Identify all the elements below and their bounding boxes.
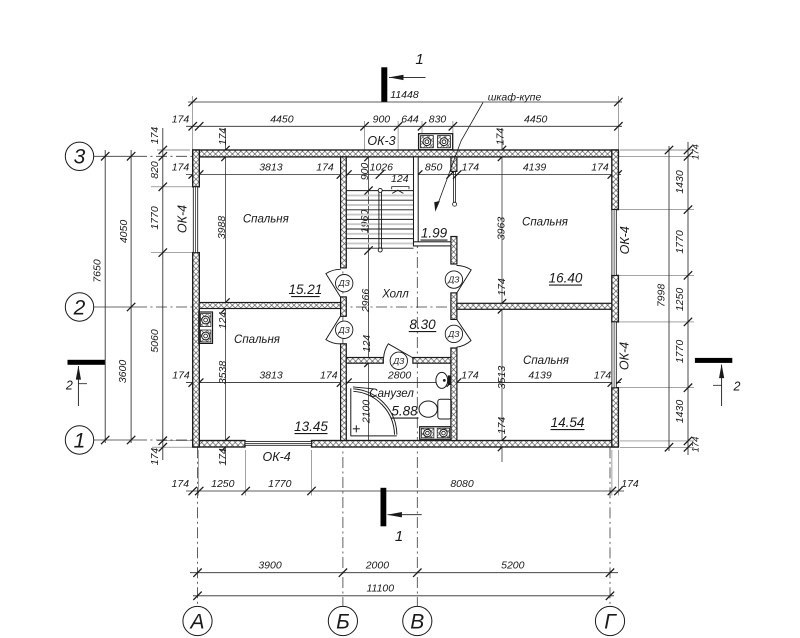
- svg-text:ОК-4: ОК-4: [262, 450, 290, 464]
- svg-text:1250: 1250: [674, 288, 686, 312]
- svg-text:4139: 4139: [523, 161, 547, 173]
- svg-text:Санузел: Санузел: [369, 388, 414, 400]
- svg-text:ОК-4: ОК-4: [176, 205, 190, 233]
- svg-text:900: 900: [373, 113, 391, 125]
- svg-text:4450: 4450: [524, 113, 548, 125]
- svg-text:174: 174: [172, 113, 190, 125]
- svg-text:174: 174: [621, 478, 639, 490]
- svg-text:174: 174: [461, 370, 479, 382]
- svg-text:174: 174: [691, 144, 702, 160]
- svg-text:2100: 2100: [361, 400, 373, 425]
- svg-text:174: 174: [172, 370, 190, 382]
- svg-text:2: 2: [65, 378, 73, 392]
- svg-text:5.88: 5.88: [391, 404, 418, 419]
- svg-text:5060: 5060: [149, 329, 161, 353]
- svg-text:Спальня: Спальня: [523, 355, 569, 367]
- svg-text:900: 900: [359, 163, 371, 181]
- svg-text:ДЗ: ДЗ: [338, 325, 351, 335]
- svg-text:3538: 3538: [217, 361, 229, 385]
- svg-text:1: 1: [415, 51, 423, 68]
- svg-text:174: 174: [594, 370, 612, 382]
- svg-text:3813: 3813: [259, 370, 283, 382]
- svg-text:Б: Б: [336, 610, 350, 633]
- svg-text:830: 830: [429, 113, 447, 125]
- svg-text:8.30: 8.30: [409, 317, 436, 332]
- svg-text:174: 174: [172, 478, 190, 490]
- svg-text:2800: 2800: [387, 370, 412, 382]
- svg-text:11448: 11448: [390, 89, 419, 101]
- svg-text:1770: 1770: [674, 230, 686, 254]
- svg-text:3513: 3513: [496, 366, 508, 390]
- svg-text:174: 174: [691, 437, 702, 453]
- svg-text:2: 2: [73, 296, 86, 319]
- svg-text:4450: 4450: [270, 113, 294, 125]
- svg-text:3900: 3900: [258, 559, 282, 571]
- svg-text:15.21: 15.21: [289, 282, 323, 297]
- svg-text:174: 174: [149, 448, 161, 466]
- svg-text:174: 174: [316, 161, 334, 173]
- svg-text:4050: 4050: [118, 220, 130, 244]
- svg-text:5200: 5200: [501, 559, 525, 571]
- svg-text:174: 174: [591, 161, 609, 173]
- svg-text:820: 820: [149, 161, 161, 179]
- svg-text:1250: 1250: [211, 478, 235, 490]
- svg-text:ОК-4: ОК-4: [618, 342, 632, 370]
- svg-text:174: 174: [217, 128, 229, 146]
- svg-text:А: А: [188, 610, 204, 633]
- svg-text:3813: 3813: [259, 161, 283, 173]
- svg-text:174: 174: [496, 278, 508, 296]
- svg-text:1.99: 1.99: [421, 226, 448, 241]
- svg-text:124: 124: [217, 312, 229, 330]
- svg-text:1960: 1960: [359, 210, 371, 234]
- svg-text:174: 174: [496, 417, 508, 435]
- svg-text:В: В: [410, 610, 424, 633]
- svg-text:ДЗ: ДЗ: [338, 278, 351, 288]
- svg-text:Холл: Холл: [381, 289, 409, 301]
- svg-text:3963: 3963: [496, 217, 508, 241]
- svg-text:1770: 1770: [674, 340, 686, 364]
- svg-text:ДЗ: ДЗ: [447, 275, 460, 285]
- svg-text:16.40: 16.40: [549, 271, 583, 286]
- svg-text:7998: 7998: [656, 284, 668, 308]
- svg-text:Спальня: Спальня: [243, 214, 289, 226]
- svg-text:ДЗ: ДЗ: [392, 356, 405, 366]
- svg-text:174: 174: [149, 127, 161, 145]
- svg-text:Г: Г: [604, 610, 617, 633]
- svg-text:1770: 1770: [149, 206, 161, 230]
- svg-text:174: 174: [495, 128, 507, 146]
- svg-text:2966: 2966: [360, 289, 372, 314]
- svg-text:ДЗ: ДЗ: [447, 329, 460, 339]
- svg-text:174: 174: [172, 161, 190, 173]
- svg-text:174: 174: [217, 448, 229, 466]
- svg-text:850: 850: [425, 161, 443, 173]
- svg-text:1430: 1430: [674, 170, 686, 194]
- svg-text:ОК-3: ОК-3: [367, 134, 395, 148]
- svg-text:Спальня: Спальня: [522, 217, 568, 229]
- svg-text:1026: 1026: [370, 161, 394, 173]
- svg-text:13.45: 13.45: [294, 419, 328, 434]
- svg-text:1430: 1430: [674, 400, 686, 424]
- svg-text:174: 174: [462, 161, 480, 173]
- svg-text:174: 174: [320, 370, 338, 382]
- svg-text:3600: 3600: [117, 360, 129, 384]
- svg-text:Спальня: Спальня: [234, 334, 280, 346]
- svg-text:3988: 3988: [216, 216, 228, 240]
- svg-text:124: 124: [361, 335, 373, 353]
- svg-text:1770: 1770: [268, 478, 292, 490]
- svg-text:644: 644: [401, 113, 419, 125]
- svg-text:14.54: 14.54: [551, 415, 585, 430]
- svg-text:1: 1: [74, 429, 86, 452]
- svg-text:11100: 11100: [366, 583, 394, 595]
- svg-text:8080: 8080: [450, 478, 474, 490]
- svg-text:124: 124: [391, 173, 409, 185]
- svg-text:1: 1: [395, 528, 403, 545]
- svg-text:2000: 2000: [365, 559, 390, 571]
- svg-text:2: 2: [733, 380, 741, 394]
- svg-text:3: 3: [74, 146, 86, 169]
- svg-text:4139: 4139: [528, 370, 552, 382]
- svg-text:7650: 7650: [92, 259, 104, 283]
- svg-text:шкаф-купе: шкаф-купе: [488, 92, 542, 104]
- svg-text:ОК-4: ОК-4: [618, 226, 632, 254]
